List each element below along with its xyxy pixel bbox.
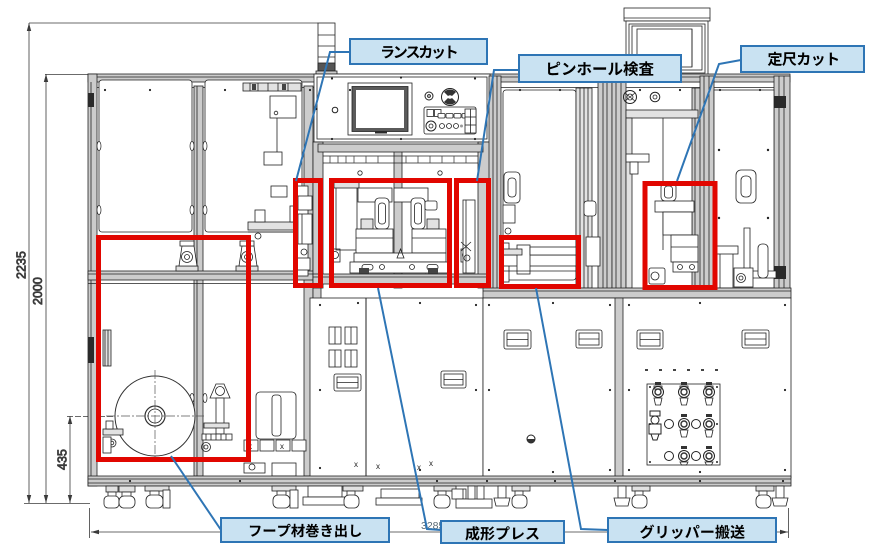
- svg-text:x: x: [354, 460, 358, 469]
- svg-text:x: x: [429, 459, 433, 468]
- svg-text:2235: 2235: [15, 251, 29, 279]
- svg-text:x: x: [376, 462, 380, 471]
- svg-text:435: 435: [56, 449, 70, 470]
- svg-text:2000: 2000: [31, 277, 45, 305]
- svg-text:x: x: [280, 442, 284, 451]
